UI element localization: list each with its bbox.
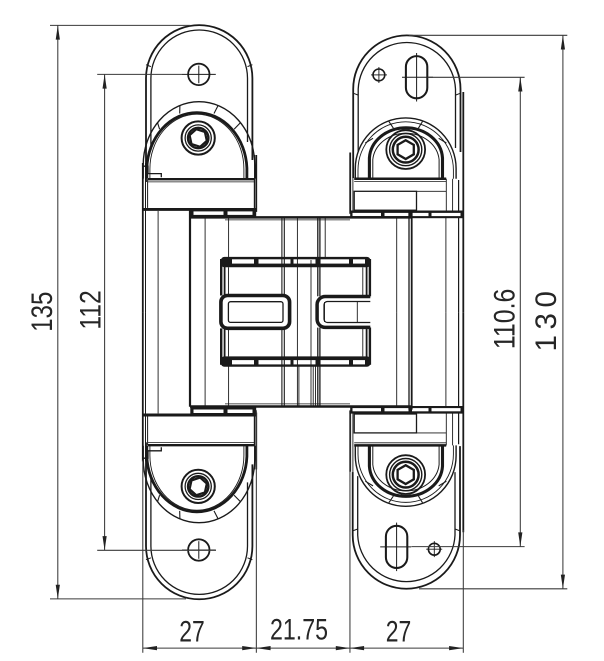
- svg-text:21.75: 21.75: [270, 614, 328, 647]
- svg-text:110.6: 110.6: [489, 289, 522, 350]
- svg-text:27: 27: [179, 615, 205, 648]
- svg-text:135: 135: [26, 292, 59, 332]
- svg-text:27: 27: [386, 615, 412, 648]
- svg-text:130: 130: [530, 291, 563, 352]
- svg-text:112: 112: [74, 290, 107, 329]
